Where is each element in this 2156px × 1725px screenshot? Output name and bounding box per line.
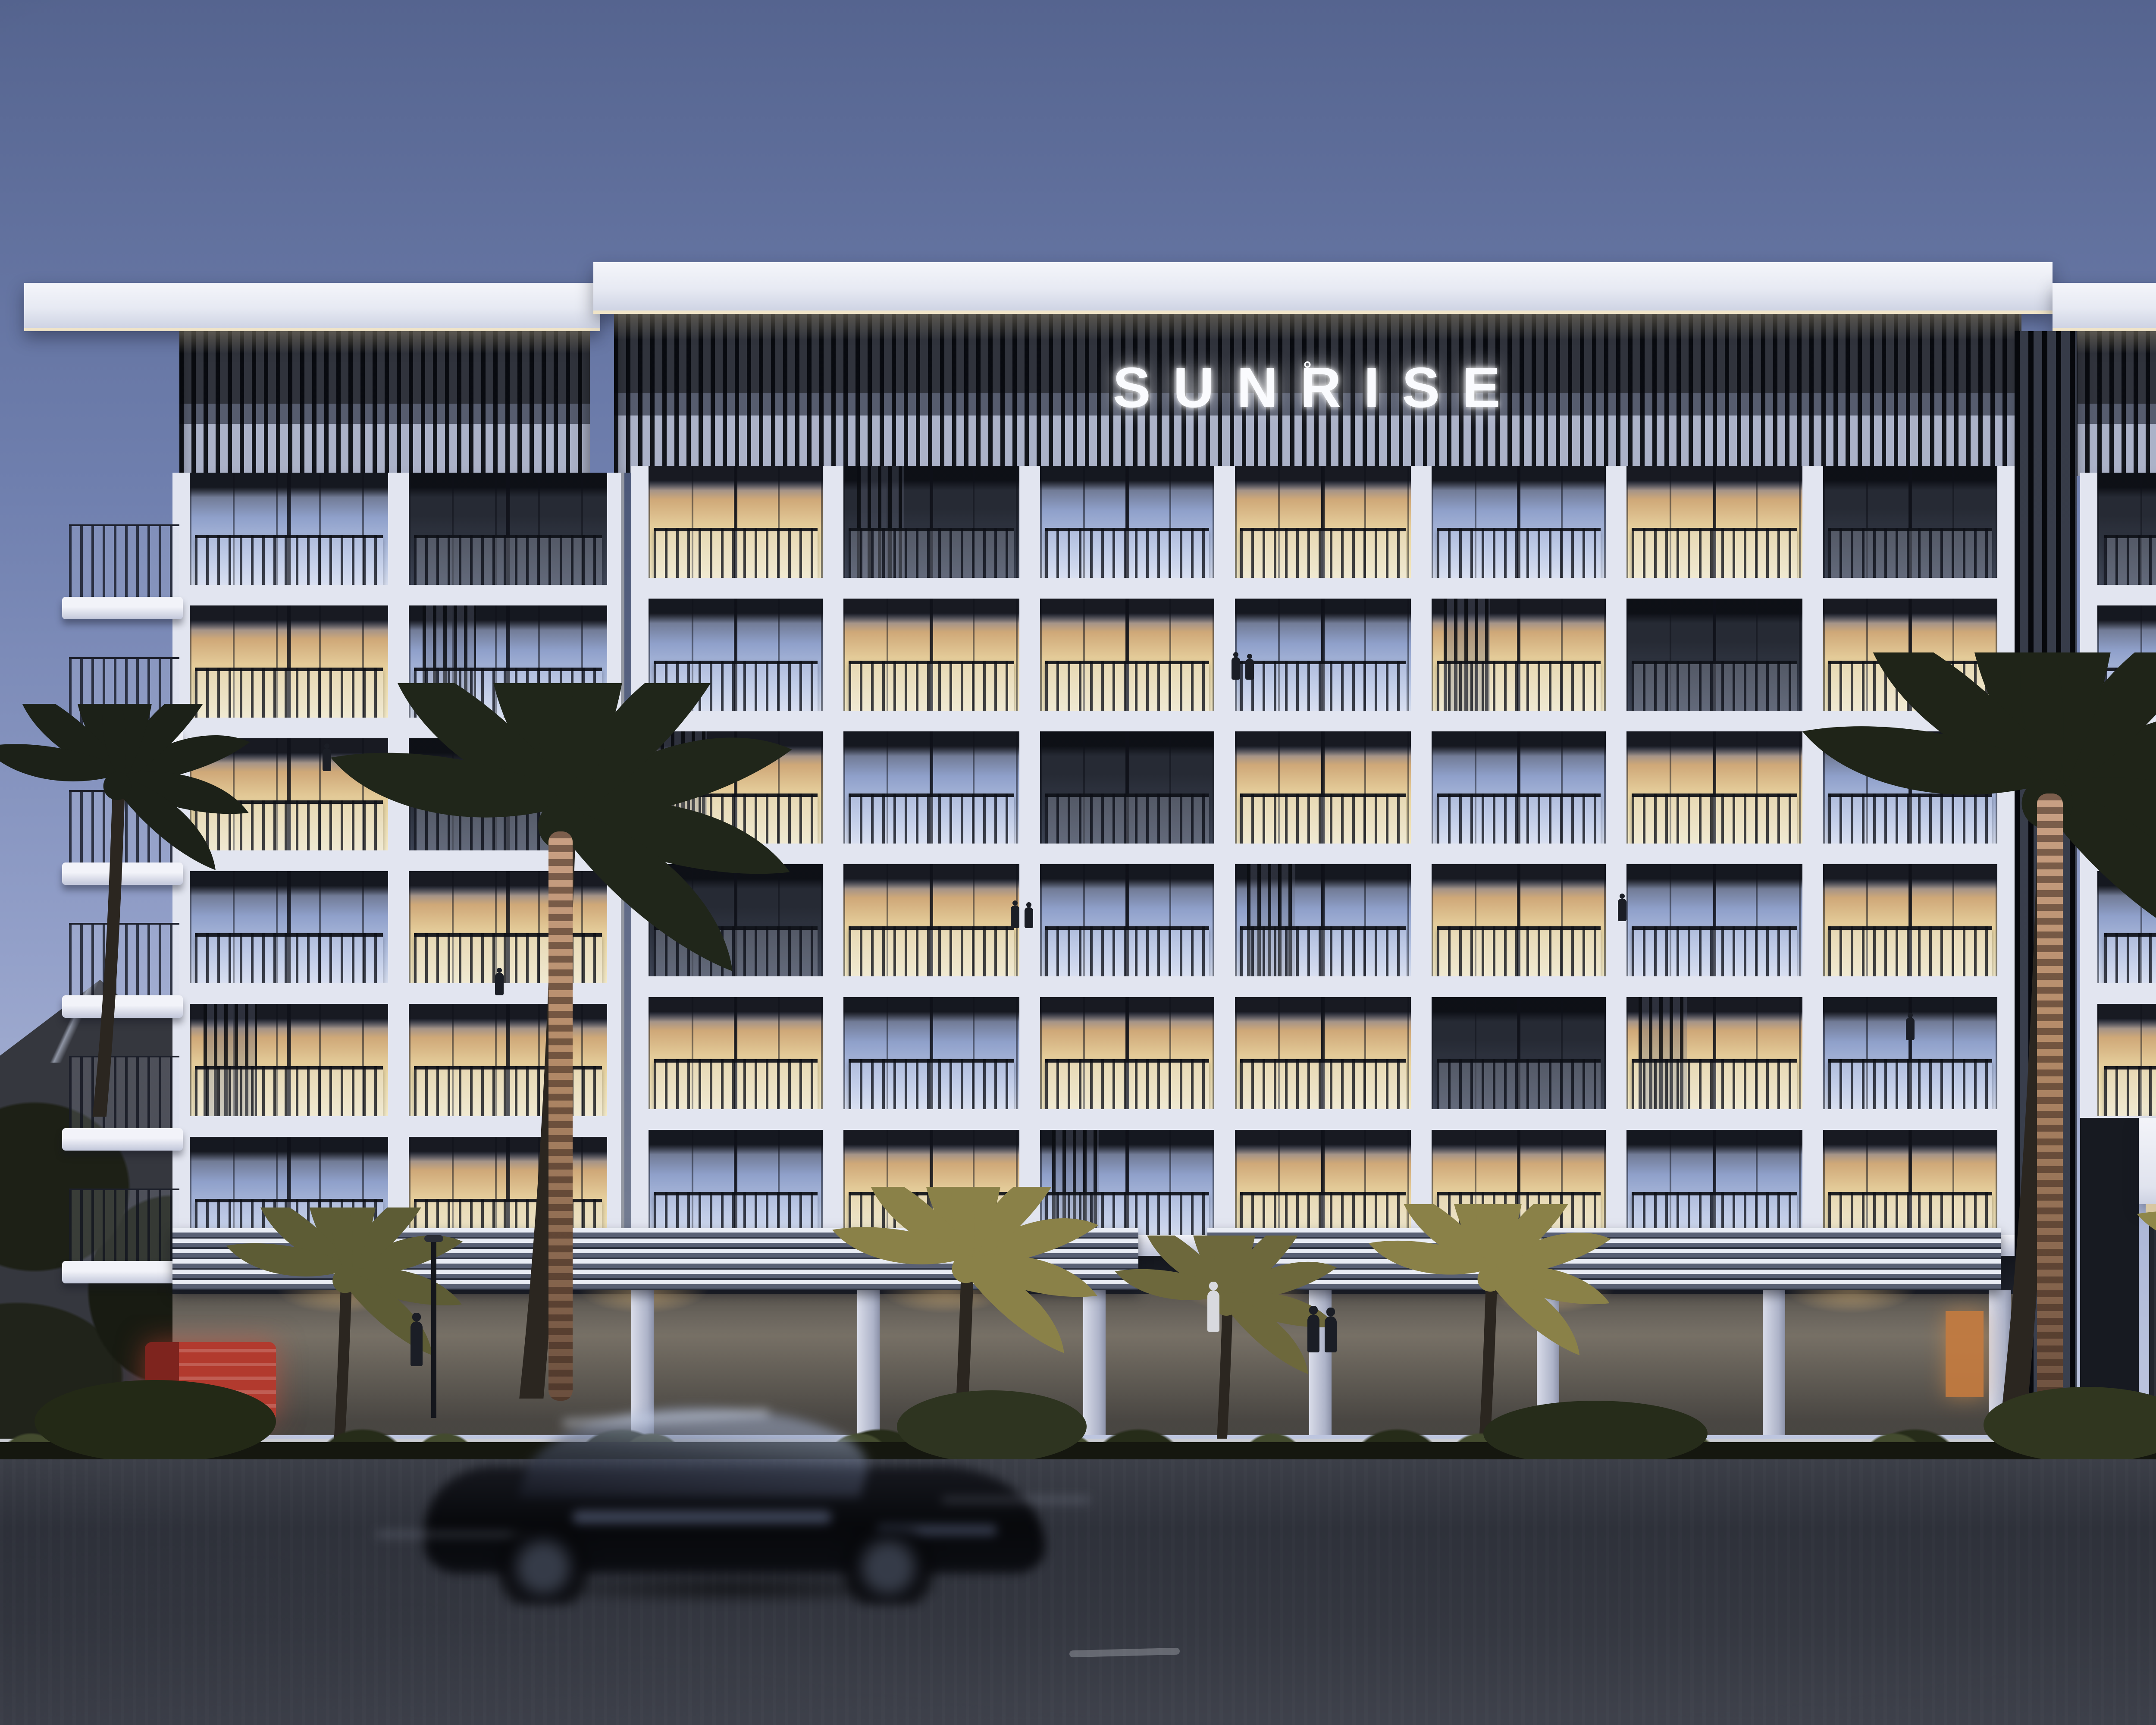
roof-louver-band-left bbox=[179, 331, 590, 476]
person-street bbox=[411, 1321, 423, 1366]
balcony-unit-cell bbox=[1431, 466, 1606, 578]
balcony-unit-cell bbox=[2097, 473, 2156, 585]
palm-tree-large-right bbox=[1763, 652, 2156, 1421]
balcony-unit-cell bbox=[1627, 466, 1802, 578]
balcony-unit-cell bbox=[1235, 599, 1410, 711]
bush bbox=[1483, 1401, 1708, 1466]
balcony-unit-cell bbox=[1235, 997, 1410, 1109]
balcony-unit-cell bbox=[1040, 997, 1215, 1109]
balcony-unit-cell bbox=[1431, 731, 1606, 844]
balcony-unit-cell bbox=[649, 466, 824, 578]
balcony-unit-cell bbox=[1235, 466, 1410, 578]
viewport: SUNRISE° LEGACY BY SUNRISE bbox=[0, 0, 2156, 1725]
balcony-unit-cell bbox=[844, 731, 1019, 844]
cantilever-balcony bbox=[69, 1151, 179, 1283]
balcony-unit-cell bbox=[1431, 599, 1606, 711]
roof-cap-left-tower bbox=[24, 283, 600, 331]
car-wheel bbox=[835, 1528, 942, 1604]
balcony-unit-cell bbox=[844, 997, 1019, 1109]
balcony-unit-cell bbox=[1235, 731, 1410, 844]
balcony-unit-cell bbox=[1040, 466, 1215, 578]
balcony-unit-cell bbox=[1040, 731, 1215, 844]
balcony-unit-cell bbox=[1822, 466, 1997, 578]
lit-palm-trunk-left bbox=[548, 831, 573, 1401]
balcony-unit-cell bbox=[1040, 864, 1215, 976]
balcony-unit-cell bbox=[844, 599, 1019, 711]
person-balcony bbox=[1245, 659, 1253, 680]
car-side-glint bbox=[573, 1511, 831, 1523]
soil-strip bbox=[0, 1442, 2156, 1459]
person-balcony bbox=[1232, 657, 1239, 680]
person-balcony bbox=[1906, 1018, 1914, 1040]
building-sign-sunrise: SUNRISE° bbox=[614, 345, 2021, 431]
entrance-light-pool bbox=[2122, 1442, 2156, 1466]
person-balcony bbox=[495, 973, 503, 995]
cantilever-balcony bbox=[69, 486, 179, 619]
person-street bbox=[1307, 1314, 1319, 1352]
lit-palm-trunk-right bbox=[2037, 793, 2063, 1414]
palm-tree-far-left bbox=[0, 704, 273, 1123]
balcony-unit-cell bbox=[1235, 864, 1410, 976]
balcony-unit-cell bbox=[844, 864, 1019, 976]
sign-text: SUNRISE bbox=[1113, 355, 1523, 421]
motion-streak bbox=[942, 1497, 1090, 1502]
roof-louver-band-right bbox=[2073, 331, 2156, 476]
roof-cap-center bbox=[593, 262, 2053, 314]
architectural-render-scene: SUNRISE° LEGACY BY SUNRISE bbox=[0, 0, 2156, 1725]
sign-trademark: ° bbox=[1303, 357, 1311, 381]
person-balcony bbox=[1618, 899, 1626, 921]
balcony-unit-cell bbox=[1431, 997, 1606, 1109]
balcony-unit-cell bbox=[1431, 864, 1606, 976]
bush bbox=[34, 1380, 276, 1463]
person-street-white bbox=[1207, 1290, 1219, 1332]
balcony-unit-cell bbox=[190, 473, 388, 585]
balcony-unit-cell bbox=[409, 473, 607, 585]
foreground-car-motion-blur bbox=[424, 1397, 1045, 1615]
person-street bbox=[1325, 1316, 1337, 1352]
person-balcony bbox=[1011, 906, 1018, 928]
person-balcony bbox=[323, 749, 330, 771]
person-balcony bbox=[1025, 907, 1032, 928]
balcony-unit-cell bbox=[1040, 599, 1215, 711]
balcony-unit-cell bbox=[844, 466, 1019, 578]
roof-cap-right-tower bbox=[2053, 283, 2156, 331]
car-wheel bbox=[490, 1528, 597, 1604]
